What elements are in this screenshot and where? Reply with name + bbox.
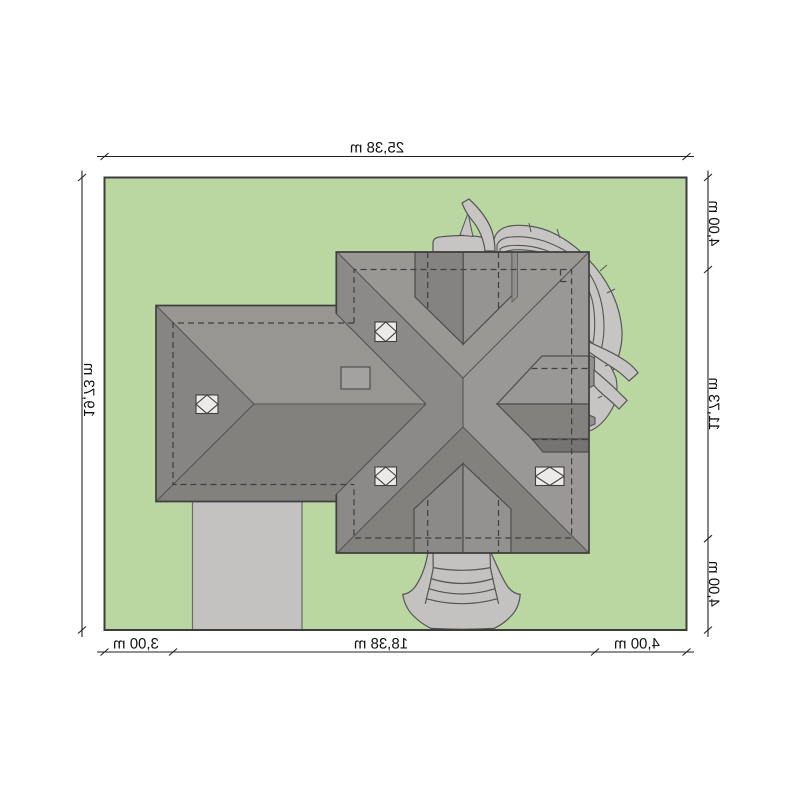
svg-text:4,00 m: 4,00 m (614, 636, 660, 653)
svg-text:3,00 m: 3,00 m (113, 636, 159, 653)
svg-text:4,00 m: 4,00 m (705, 201, 722, 247)
svg-text:19,73 m: 19,73 m (80, 363, 97, 417)
svg-text:11,73 m: 11,73 m (705, 377, 722, 430)
svg-text:25,38 m: 25,38 m (350, 140, 404, 157)
svg-text:18,38 m: 18,38 m (354, 636, 408, 653)
svg-text:4,00 m: 4,00 m (705, 561, 722, 607)
